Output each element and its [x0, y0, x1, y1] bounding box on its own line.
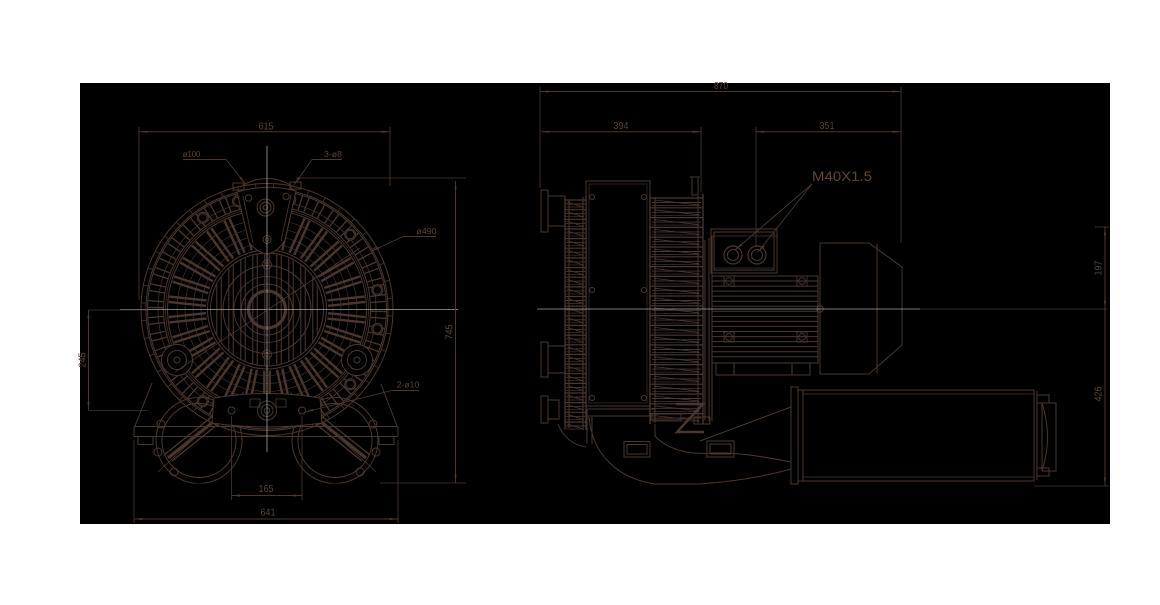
svg-text:165: 165	[259, 484, 274, 495]
svg-text:3-ø8: 3-ø8	[324, 149, 342, 159]
svg-text:426: 426	[1094, 386, 1105, 401]
svg-text:615: 615	[259, 122, 274, 133]
svg-text:M40X1.5: M40X1.5	[812, 168, 872, 184]
svg-text:745: 745	[445, 324, 456, 339]
svg-text:394: 394	[614, 121, 629, 132]
svg-text:641: 641	[261, 508, 276, 519]
svg-text:870: 870	[714, 81, 728, 92]
svg-text:197: 197	[1094, 260, 1105, 275]
svg-text:ø100: ø100	[183, 149, 201, 159]
svg-text:351: 351	[820, 121, 835, 132]
svg-text:2-ø10: 2-ø10	[397, 381, 420, 390]
svg-text:245: 245	[78, 352, 89, 367]
svg-text:ø490: ø490	[417, 226, 437, 236]
